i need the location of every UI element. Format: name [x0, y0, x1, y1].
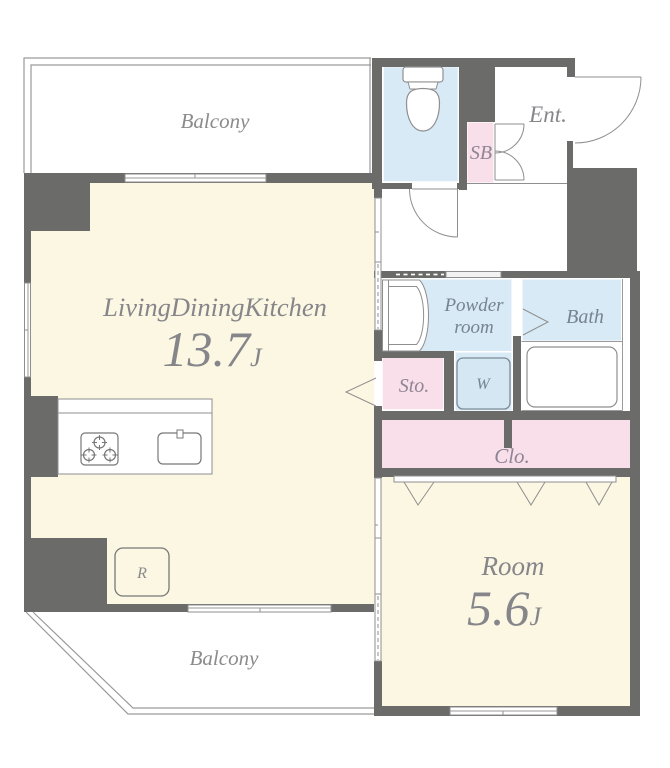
svg-text:W: W: [476, 376, 491, 393]
svg-text:Ent.: Ent.: [528, 102, 567, 127]
svg-text:Room: Room: [481, 551, 545, 581]
svg-text:Balcony: Balcony: [190, 646, 259, 670]
svg-text:Bath: Bath: [566, 306, 604, 328]
svg-text:Powder: Powder: [443, 295, 504, 316]
svg-text:room: room: [454, 317, 493, 338]
svg-text:SB: SB: [470, 142, 492, 164]
svg-text:R: R: [136, 565, 147, 582]
svg-text:Clo.: Clo.: [494, 444, 530, 468]
svg-text:Sto.: Sto.: [399, 375, 430, 397]
svg-text:LivingDiningKitchen: LivingDiningKitchen: [102, 292, 327, 322]
svg-text:Balcony: Balcony: [181, 109, 250, 133]
svg-text:13.7J: 13.7J: [162, 321, 263, 377]
